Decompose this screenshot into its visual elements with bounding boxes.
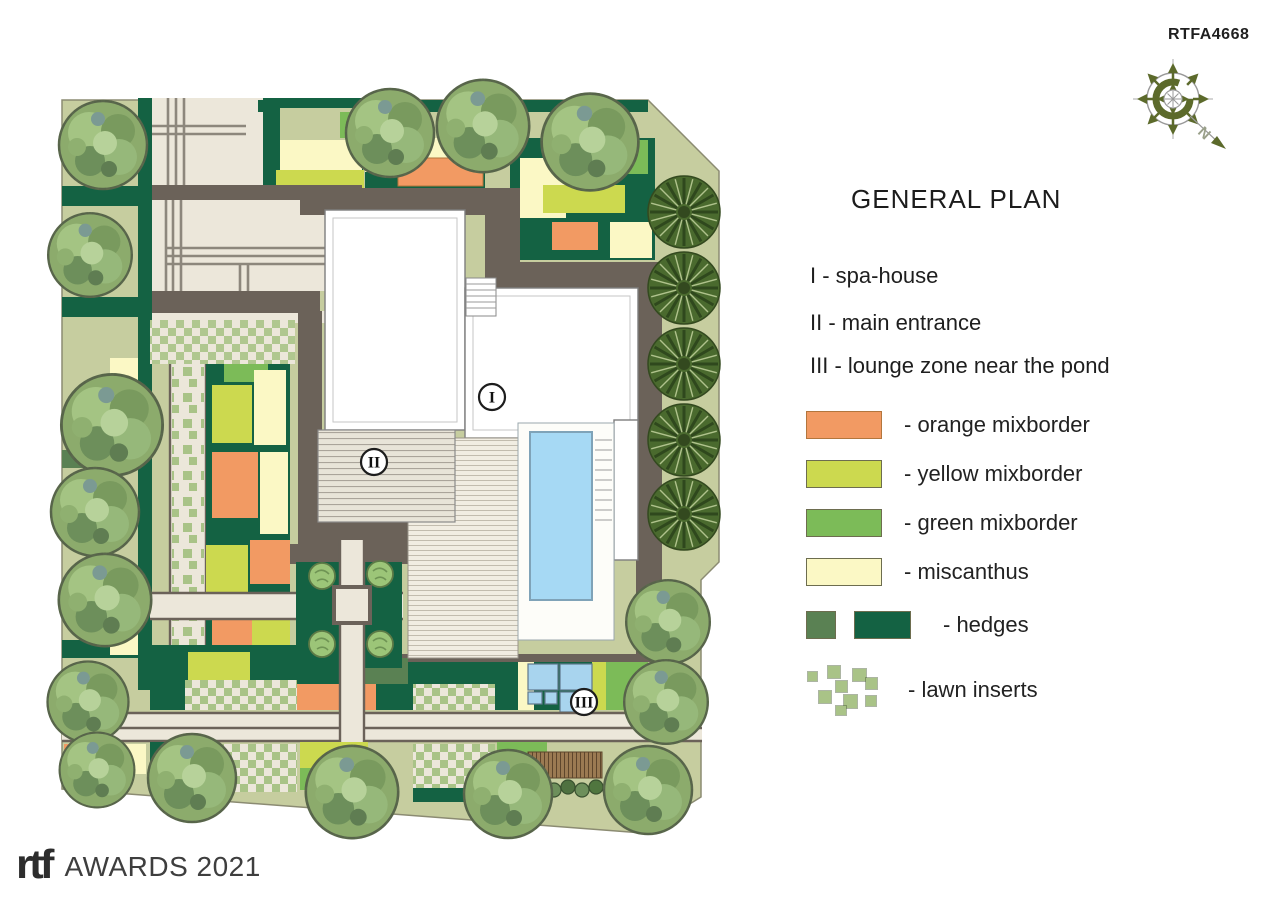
corridor-left — [170, 330, 206, 698]
marker-spa-house: I — [479, 384, 505, 410]
svg-text:II: II — [368, 455, 380, 472]
entrance-deck — [318, 430, 455, 522]
legend-label: - miscanthus — [904, 559, 1029, 585]
hedge-olive-swatch — [806, 611, 836, 639]
legend-label: - hedges — [943, 612, 1029, 638]
compass-rose-icon: N — [1128, 56, 1244, 160]
svg-text:N: N — [1194, 123, 1214, 143]
svg-text:I: I — [489, 390, 495, 407]
lawn-inserts-upper — [150, 320, 295, 364]
svg-text:III: III — [575, 695, 594, 712]
north-arrow: N — [1190, 116, 1226, 149]
project-code: RTFA4668 — [1168, 26, 1249, 44]
site-plan: I II III — [0, 0, 790, 900]
legend-item-miscanthus: - miscanthus — [806, 558, 1029, 586]
yellow-mixborder-swatch — [806, 460, 882, 488]
legend-item-yellow-mixborder: - yellow mixborder — [806, 460, 1083, 488]
rtf-logo: rtf — [16, 848, 50, 883]
key-item-spa-house: I - spa-house — [810, 263, 938, 289]
pool — [518, 423, 614, 640]
marker-main-entrance: II — [361, 449, 387, 475]
miscanthus-swatch — [806, 558, 882, 586]
legend-item-orange-mixborder: - orange mixborder — [806, 411, 1090, 439]
legend-item-hedges: - hedges — [806, 611, 1029, 639]
green-mixborder-swatch — [806, 509, 882, 537]
legend-label: - yellow mixborder — [904, 461, 1083, 487]
mixborder-quilt-left — [206, 330, 290, 690]
footer: rtf AWARDS 2021 — [16, 846, 261, 884]
page-title: GENERAL PLAN — [851, 184, 1061, 215]
orange-mixborder-swatch — [806, 411, 882, 439]
legend-label: - orange mixborder — [904, 412, 1090, 438]
legend-item-green-mixborder: - green mixborder — [806, 509, 1078, 537]
legend-label: - lawn inserts — [908, 677, 1038, 703]
marker-lounge-zone: III — [571, 689, 597, 715]
hedge-dark-swatch — [854, 611, 911, 639]
path-horizontal-bottom — [62, 713, 702, 741]
trees-conifer — [642, 170, 725, 555]
steps — [466, 278, 496, 316]
key-item-lounge-zone: III - lounge zone near the pond — [810, 353, 1110, 379]
legend-item-lawn-inserts: - lawn inserts — [806, 664, 1038, 716]
lawn-inserts-icon — [806, 664, 886, 716]
legend-label: - green mixborder — [904, 510, 1078, 536]
key-item-main-entrance: II - main entrance — [810, 310, 981, 336]
footer-text: AWARDS 2021 — [64, 850, 260, 884]
